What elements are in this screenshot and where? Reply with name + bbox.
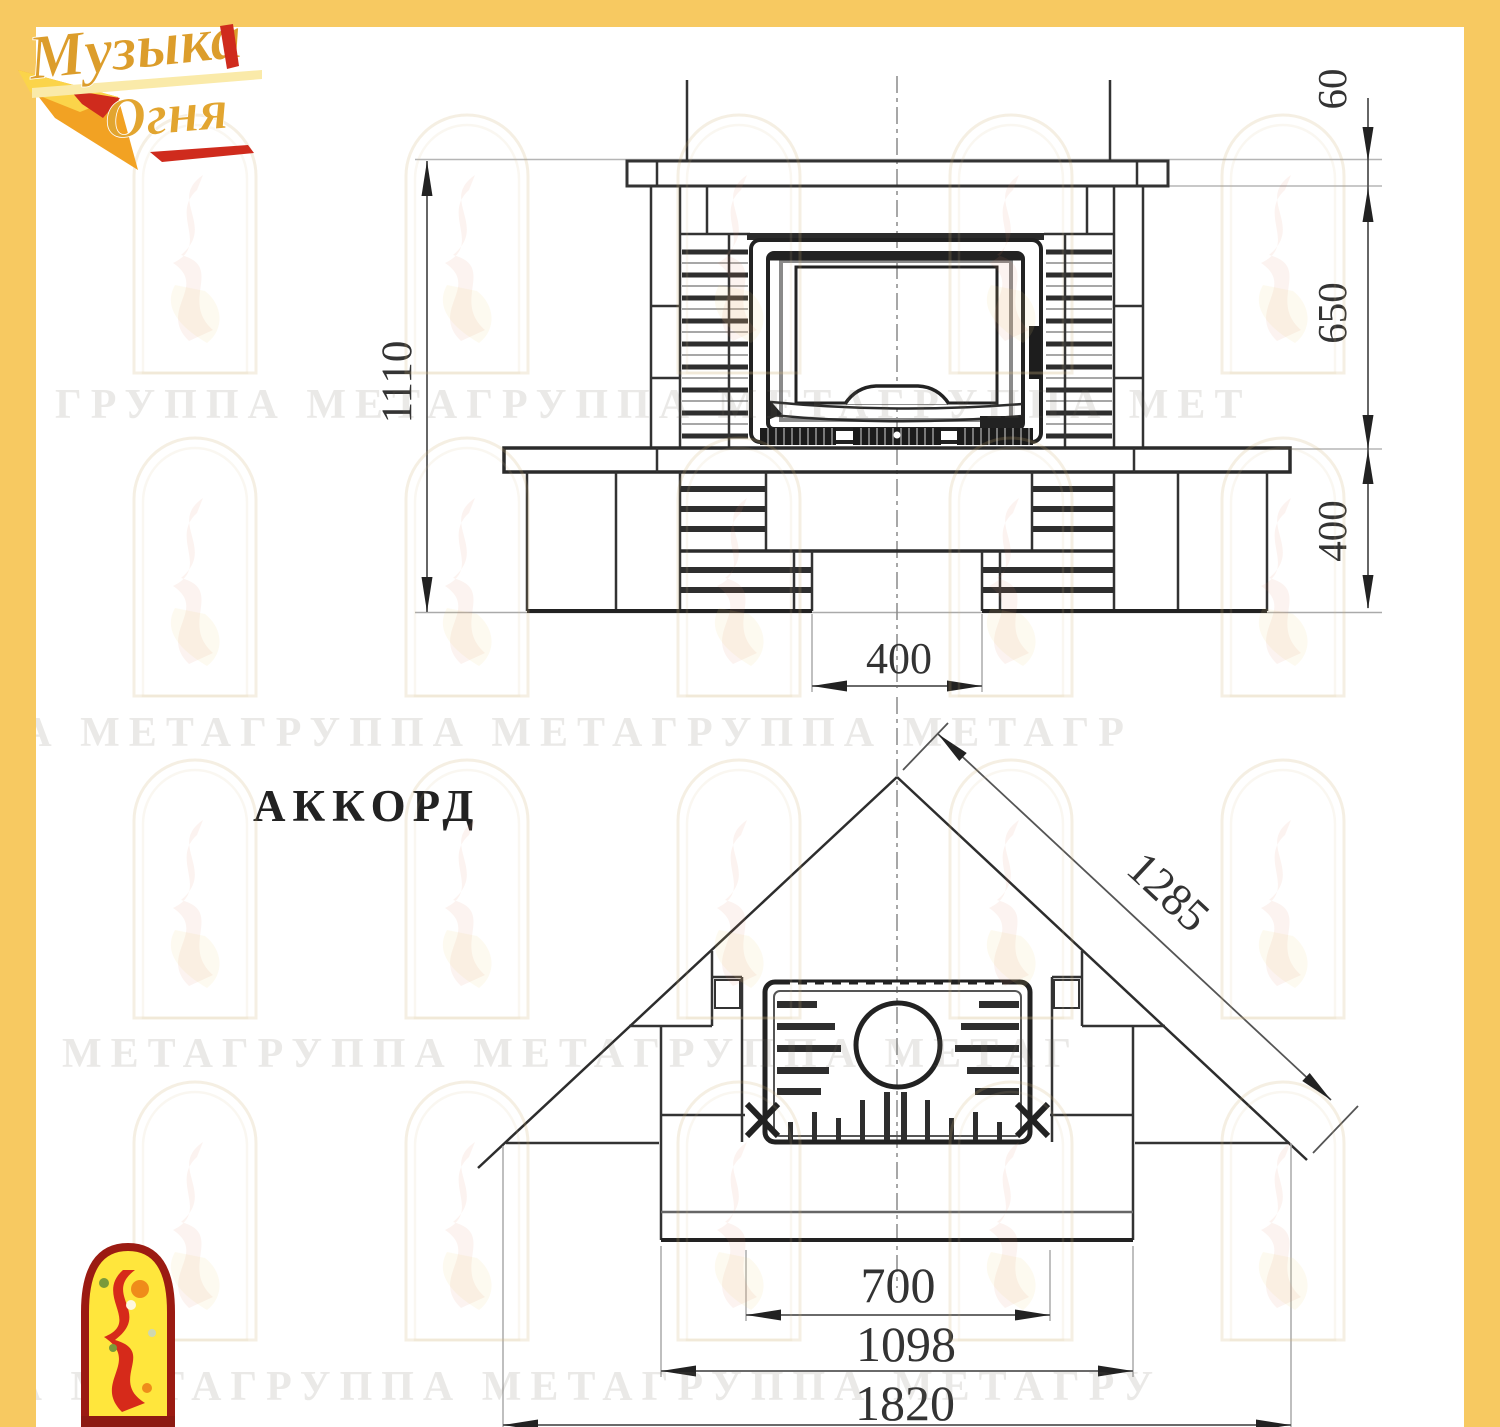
svg-text:400: 400 — [866, 634, 932, 683]
svg-text:АККОРД: АККОРД — [253, 781, 480, 831]
svg-text:Огня: Огня — [102, 78, 230, 151]
svg-text:60: 60 — [1309, 69, 1355, 110]
svg-text:400: 400 — [1309, 500, 1355, 562]
svg-text:1285: 1285 — [1118, 842, 1220, 942]
svg-text:650: 650 — [1309, 282, 1355, 344]
svg-text:ППА МЕТАГРУППА МЕТАГРУППА МЕТА: ППА МЕТАГРУППА МЕТАГРУППА МЕТАГР — [0, 710, 1133, 756]
svg-text:700: 700 — [861, 1257, 936, 1313]
svg-text:УППА МЕТАГРУППА МЕТАГРУППА МЕТ: УППА МЕТАГРУППА МЕТАГРУППА МЕТАГ — [0, 1031, 1080, 1077]
svg-text:ГРУППА МЕТАГРУППА МЕТАГРУППА М: ГРУППА МЕТАГРУППА МЕТАГРУППА МЕТ — [55, 382, 1251, 428]
